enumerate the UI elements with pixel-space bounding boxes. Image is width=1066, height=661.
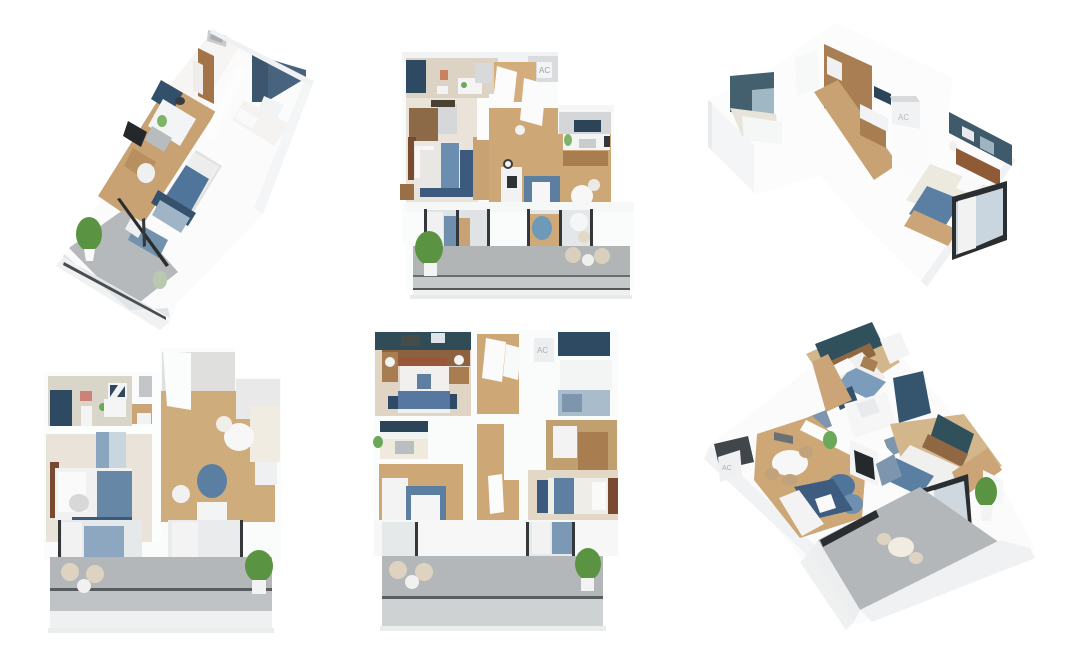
svg-text:AC: AC: [539, 66, 550, 75]
svg-text:AC: AC: [898, 113, 909, 122]
svg-text:AC: AC: [537, 346, 548, 355]
svg-text:AC: AC: [722, 465, 732, 472]
